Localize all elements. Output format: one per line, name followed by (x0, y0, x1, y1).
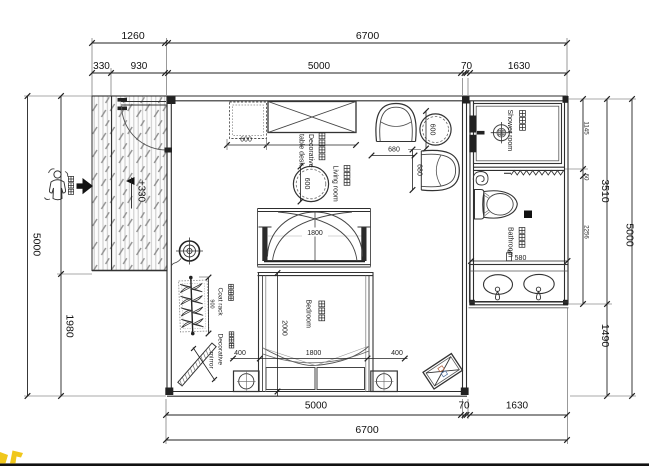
svg-text:2000: 2000 (281, 320, 288, 336)
svg-text:+330: +330 (136, 180, 147, 203)
svg-text:60: 60 (583, 174, 590, 181)
svg-text:70: 70 (458, 401, 470, 412)
svg-text:580: 580 (515, 255, 527, 262)
svg-text:3510: 3510 (599, 179, 611, 203)
svg-text:1800: 1800 (306, 350, 322, 357)
svg-text:330: 330 (93, 61, 110, 72)
svg-text:Decorative: Decorative (307, 134, 314, 168)
svg-text:2256: 2256 (583, 225, 590, 239)
svg-text:70: 70 (461, 61, 473, 72)
svg-text:930: 930 (131, 61, 148, 72)
svg-text:1260: 1260 (121, 30, 145, 42)
svg-text:6700: 6700 (356, 30, 380, 42)
svg-text:5000: 5000 (308, 61, 331, 72)
svg-text:5000: 5000 (624, 223, 636, 247)
svg-text:1630: 1630 (506, 401, 529, 412)
svg-text:680: 680 (416, 164, 423, 176)
svg-text:400: 400 (391, 350, 403, 357)
svg-text:900: 900 (209, 299, 215, 308)
svg-text:1980: 1980 (64, 314, 76, 338)
svg-text:600: 600 (429, 124, 436, 136)
svg-text:6700: 6700 (355, 424, 379, 436)
svg-text:1490: 1490 (599, 324, 611, 348)
svg-text:Shower room: Shower room (506, 110, 513, 152)
svg-text:5000: 5000 (31, 233, 43, 257)
svg-text:1630: 1630 (508, 61, 531, 72)
svg-text:1800: 1800 (307, 230, 323, 237)
svg-text:600: 600 (240, 137, 252, 144)
svg-text:Living room: Living room (332, 166, 339, 202)
svg-text:680: 680 (388, 147, 400, 154)
svg-text:400: 400 (234, 350, 246, 357)
svg-text:Bedroom: Bedroom (305, 300, 312, 329)
svg-text:mirror: mirror (208, 352, 215, 370)
svg-text:5000: 5000 (305, 401, 328, 412)
svg-text:Coat rack: Coat rack (217, 288, 224, 317)
svg-text:Decorative: Decorative (217, 334, 224, 366)
svg-text:table desk: table desk (298, 134, 305, 166)
svg-text:1145: 1145 (583, 121, 590, 135)
svg-text:600: 600 (303, 178, 310, 190)
